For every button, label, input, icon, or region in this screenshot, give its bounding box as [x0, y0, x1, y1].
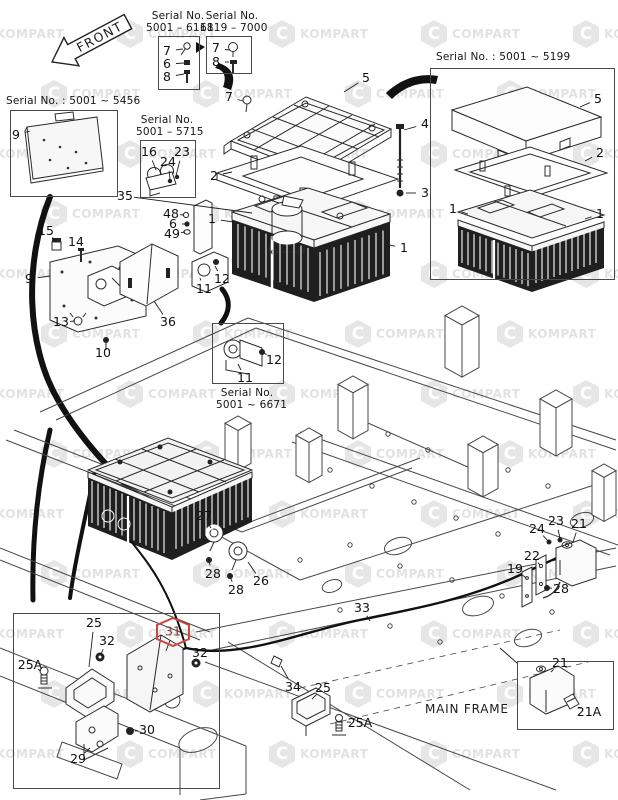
- part-label-11: 11: [237, 372, 253, 385]
- part-label-8: 8: [212, 56, 220, 69]
- part-label-24: 24: [529, 523, 545, 536]
- part-label-4: 4: [421, 118, 429, 131]
- part-label-34: 34: [285, 681, 301, 694]
- part-label-23: 23: [548, 515, 564, 528]
- part-label-19: 19: [507, 563, 523, 576]
- part-label-28: 28: [205, 568, 221, 581]
- part-label-9: 9: [25, 273, 33, 286]
- part-label-7: 7: [225, 91, 233, 104]
- part-label-16: 16: [141, 146, 157, 159]
- part-label-49: 49: [164, 228, 180, 241]
- part-label-13: 13: [53, 316, 69, 329]
- part-label-25: 25: [315, 682, 331, 695]
- part-label-25: 25: [86, 617, 102, 630]
- part-label-30: 30: [139, 724, 155, 737]
- part-label-11: 11: [196, 283, 212, 296]
- part-label-3: 3: [421, 187, 429, 200]
- part-label-25A: 25A: [18, 659, 42, 672]
- part-label-14: 14: [68, 236, 84, 249]
- part-label-27: 27: [196, 510, 212, 523]
- part-label-22: 22: [524, 550, 540, 563]
- part-label-36: 36: [160, 316, 176, 329]
- part-label-25A: 25A: [348, 717, 372, 730]
- part-label-29: 29: [70, 753, 86, 766]
- part-label-5: 5: [594, 93, 602, 106]
- part-label-1: 1: [208, 213, 216, 226]
- part-label-21: 21: [571, 518, 587, 531]
- callout-layer: 7687891624233557243114864915149131036111…: [0, 0, 618, 800]
- part-label-23: 23: [174, 146, 190, 159]
- part-label-1: 1: [400, 242, 408, 255]
- parts-diagram-page: CKOMPARTCCOMPARTCKOMPARTCCOMPARTCKOMPART…: [0, 0, 618, 800]
- part-label-28: 28: [228, 584, 244, 597]
- part-label-32: 32: [99, 635, 115, 648]
- part-label-28: 28: [553, 583, 569, 596]
- part-label-5: 5: [362, 72, 370, 85]
- part-label-21: 21: [552, 657, 568, 670]
- part-label-12: 12: [266, 354, 282, 367]
- part-label-26: 26: [253, 575, 269, 588]
- part-label-9: 9: [12, 129, 20, 142]
- part-label-1: 1: [596, 208, 604, 221]
- part-label-7: 7: [212, 42, 220, 55]
- part-label-12: 12: [214, 273, 230, 286]
- part-label-21A: 21A: [577, 706, 601, 719]
- part-label-10: 10: [95, 347, 111, 360]
- highlighted-part-label-31: 31: [155, 617, 191, 648]
- part-label-33: 33: [354, 602, 370, 615]
- part-label-35: 35: [117, 190, 133, 203]
- part-label-2: 2: [596, 147, 604, 160]
- part-label-2: 2: [210, 170, 218, 183]
- part-label-1: 1: [449, 203, 457, 216]
- part-label-32: 32: [192, 647, 208, 660]
- part-label-8: 8: [163, 71, 171, 84]
- part-label-15: 15: [38, 225, 54, 238]
